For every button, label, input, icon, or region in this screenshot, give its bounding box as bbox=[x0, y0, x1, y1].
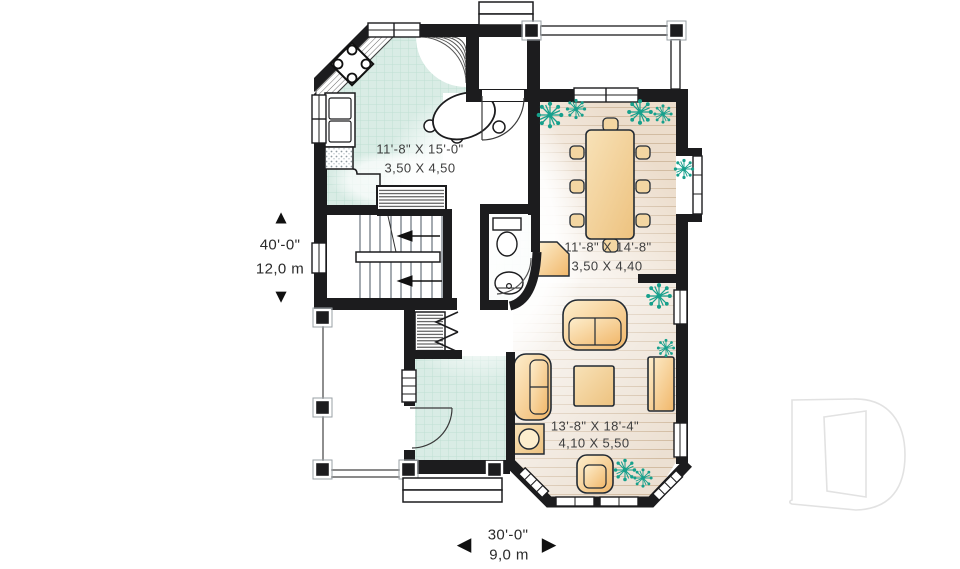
width-dimension-imperial: 30'-0" bbox=[488, 527, 529, 544]
kitchen-dimensions-imperial: 11'-8" X 15'-0" bbox=[376, 142, 463, 157]
top-right-porch bbox=[522, 21, 686, 89]
top-stoop bbox=[479, 2, 533, 25]
foyer-side-window bbox=[402, 370, 416, 402]
stair-landing bbox=[356, 252, 440, 262]
down-arrow-icon: ▼ bbox=[272, 288, 291, 307]
front-steps bbox=[403, 478, 502, 502]
stair-window bbox=[312, 243, 326, 273]
living-dimensions-imperial: 13'-8" X 18'-4" bbox=[551, 419, 639, 434]
dining-dimensions-metric: 3,50 X 4,40 bbox=[572, 259, 643, 274]
kitchen-sink-icon bbox=[325, 93, 355, 147]
floor-plan-canvas: 11'-8" X 15'-0" 3,50 X 4,50 11'-8" X 14'… bbox=[0, 0, 960, 569]
dining-bay-window bbox=[676, 148, 702, 222]
armchair-icon bbox=[577, 455, 613, 493]
height-dimension-imperial: 40'-0" bbox=[260, 237, 301, 254]
dining-table bbox=[586, 130, 634, 239]
up-arrow-icon: ▲ bbox=[272, 209, 291, 228]
height-dimension-metric: 12,0 m bbox=[256, 261, 304, 278]
dining-top-window bbox=[574, 88, 638, 102]
width-dimension-metric: 9,0 m bbox=[489, 547, 529, 564]
kitchen-top-window bbox=[368, 23, 420, 37]
kitchen-dimensions-metric: 3,50 X 4,50 bbox=[385, 161, 456, 176]
sofa-icon bbox=[514, 354, 551, 420]
living-right-window-2 bbox=[674, 423, 687, 457]
left-arrow-icon: ◀ bbox=[457, 536, 472, 555]
coffee-table bbox=[574, 366, 614, 406]
end-table-lamp bbox=[514, 424, 544, 454]
floor-plan-drawing bbox=[0, 0, 960, 569]
living-dimensions-metric: 4,10 X 5,50 bbox=[559, 436, 630, 451]
kitchen-left-window bbox=[312, 95, 326, 143]
letter-d-logo-icon bbox=[790, 399, 905, 510]
living-right-window-1 bbox=[674, 290, 687, 324]
right-arrow-icon: ▶ bbox=[542, 536, 557, 555]
tv-cabinet bbox=[648, 357, 674, 411]
dining-dimensions-imperial: 11'-8" X 14'-8" bbox=[564, 240, 651, 255]
loveseat-icon bbox=[563, 300, 627, 350]
